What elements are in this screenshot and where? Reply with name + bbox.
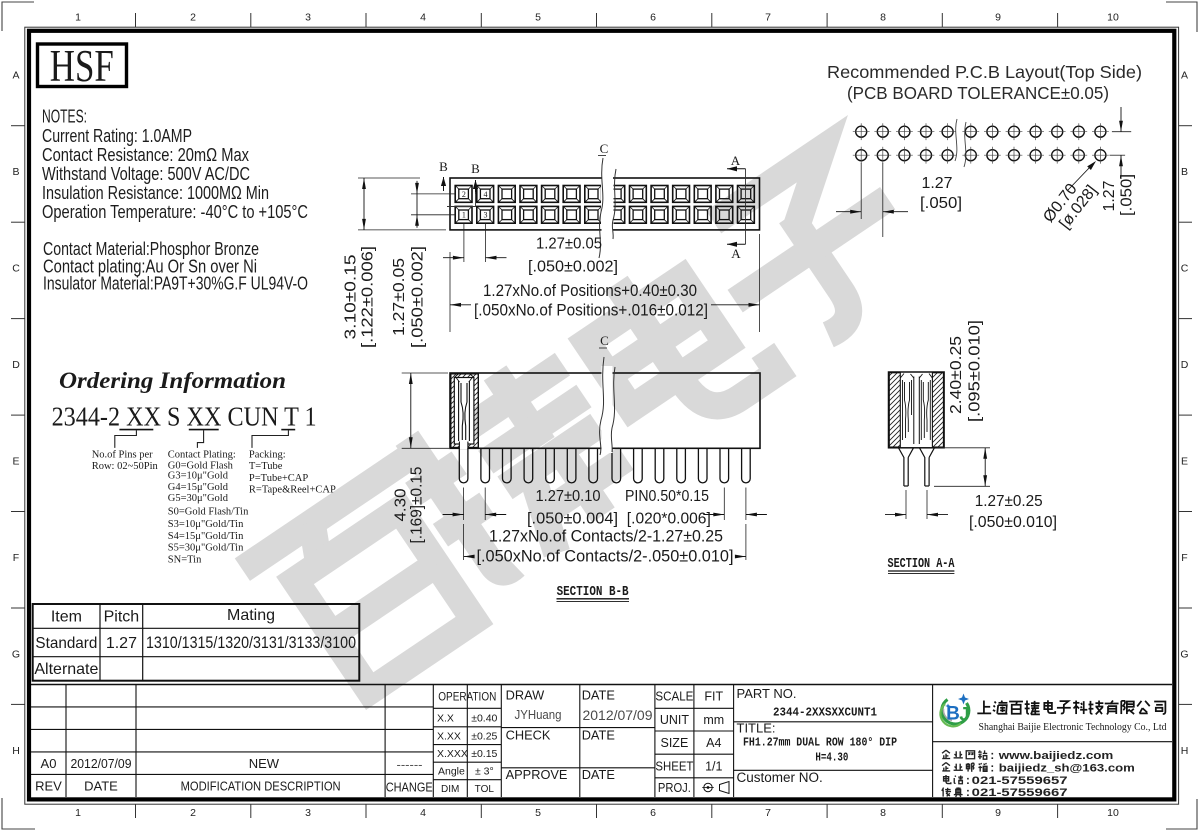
svg-text:2.40±0.25: 2.40±0.25 (948, 336, 965, 414)
svg-text:Item: Item (51, 609, 82, 626)
svg-text:E: E (12, 456, 19, 468)
svg-text:SN=Tin: SN=Tin (168, 554, 202, 565)
svg-text:C: C (600, 333, 609, 348)
svg-text:2344-2XXSXXCUNT1: 2344-2XXSXXCUNT1 (773, 706, 877, 720)
svg-text:4: 4 (420, 807, 426, 819)
svg-text:Recommended P.C.B Layout(Top S: Recommended P.C.B Layout(Top Side) (827, 62, 1142, 82)
svg-text:X.XX: X.XX (437, 731, 461, 743)
svg-text:Contact Resistance: 20mΩ Max: Contact Resistance: 20mΩ Max (42, 145, 249, 165)
svg-text:7: 7 (765, 12, 771, 24)
svg-text:Alternate: Alternate (34, 661, 98, 678)
svg-text:D: D (1181, 359, 1189, 371)
svg-text:SECTION B-B: SECTION B-B (557, 585, 629, 600)
svg-text:Angle: Angle (438, 766, 465, 778)
svg-text:±0.40: ±0.40 (471, 713, 497, 725)
svg-text:Operation Temperature: -40°C t: Operation Temperature: -40°C to +105°C (42, 202, 308, 222)
svg-text:[.050]: [.050] (920, 195, 962, 212)
svg-text:DIM: DIM (441, 784, 459, 795)
svg-text::: : (990, 750, 994, 762)
svg-text:NOTES:: NOTES: (42, 107, 87, 127)
svg-text:APPROVE: APPROVE (506, 767, 568, 782)
svg-text:B: B (12, 166, 19, 178)
svg-text:3.10±0.15: 3.10±0.15 (343, 255, 360, 340)
svg-text:C: C (1181, 263, 1189, 275)
svg-text:Contact Plating:: Contact Plating: (168, 450, 236, 461)
svg-text:2012/07/09: 2012/07/09 (71, 756, 132, 771)
svg-text:1.27±0.25: 1.27±0.25 (975, 493, 1043, 510)
svg-text:F: F (1181, 552, 1187, 564)
svg-text:DATE: DATE (582, 728, 615, 743)
svg-text:9: 9 (995, 12, 1001, 24)
svg-text:2: 2 (462, 190, 466, 199)
svg-text:10: 10 (1107, 807, 1119, 819)
svg-text:1.27: 1.27 (106, 635, 137, 652)
svg-text:2344-2 XX S XX CUN T 1: 2344-2 XX S XX CUN T 1 (52, 402, 317, 432)
svg-text:H: H (1181, 745, 1189, 757)
svg-text:A: A (1181, 70, 1188, 82)
svg-text:S0=Gold Flash/Tin: S0=Gold Flash/Tin (168, 507, 249, 518)
svg-text:A0: A0 (41, 756, 57, 771)
svg-text:[.122±0.006]: [.122±0.006] (360, 246, 377, 348)
svg-text:SIZE: SIZE (661, 736, 689, 750)
svg-text:Current Rating: 1.0AMP: Current Rating: 1.0AMP (42, 126, 192, 146)
svg-text:OPERATION: OPERATION (438, 690, 496, 704)
svg-text::: : (966, 787, 970, 799)
svg-text:[.050±0.002]: [.050±0.002] (410, 246, 427, 348)
svg-text:Customer NO.: Customer NO. (737, 770, 823, 785)
svg-text:G3=10μ"Gold: G3=10μ"Gold (168, 470, 229, 481)
svg-text:DATE: DATE (84, 779, 118, 794)
svg-text:[.050±0.002]: [.050±0.002] (528, 259, 618, 276)
svg-text:1: 1 (75, 807, 81, 819)
svg-text:X.XXX: X.XXX (437, 748, 468, 760)
svg-text:FH1.27mm DUAL ROW 180° DIP: FH1.27mm DUAL ROW 180° DIP (743, 736, 897, 750)
svg-text:2: 2 (190, 807, 196, 819)
svg-text:SECTION A-A: SECTION A-A (888, 557, 956, 572)
svg-text:B: B (1181, 166, 1188, 178)
svg-text:4.30: 4.30 (392, 488, 409, 521)
svg-text:[.050xNo.of Positions+.016±0.0: [.050xNo.of Positions+.016±0.012] (474, 302, 708, 320)
svg-text:4: 4 (420, 12, 426, 24)
svg-text:Insulator Material:PA9T+30%G.F: Insulator Material:PA9T+30%G.F UL94V-O (43, 274, 308, 294)
svg-text:Shanghai Baijie Electronic Tec: Shanghai Baijie Electronic Technology Co… (979, 721, 1168, 733)
svg-text:F: F (13, 552, 19, 564)
svg-text:JYHuang: JYHuang (515, 707, 562, 722)
svg-text:Packing:: Packing: (249, 450, 286, 461)
svg-text:P=Tube+CAP: P=Tube+CAP (249, 473, 308, 484)
svg-text:PART NO.: PART NO. (737, 686, 797, 701)
svg-text:mm: mm (703, 713, 724, 727)
svg-text:±0.25: ±0.25 (471, 731, 497, 743)
svg-text:1.27: 1.27 (922, 175, 953, 192)
svg-text:A4: A4 (706, 736, 721, 750)
svg-text:baijiedz_sh@163.com: baijiedz_sh@163.com (999, 762, 1135, 774)
svg-text:UNIT: UNIT (660, 713, 690, 727)
svg-text:J: J (959, 705, 970, 726)
svg-text:Standard: Standard (35, 635, 97, 652)
svg-text:±0.15: ±0.15 (471, 748, 497, 760)
svg-text:3: 3 (484, 211, 488, 220)
svg-text::: : (966, 775, 970, 787)
svg-text:1.27xNo.of Positions+0.40±0.30: 1.27xNo.of Positions+0.40±0.30 (483, 282, 697, 300)
svg-text:NEW: NEW (249, 756, 280, 771)
svg-text:TOL: TOL (475, 784, 495, 795)
svg-text:5: 5 (535, 807, 541, 819)
svg-text:DATE: DATE (582, 688, 615, 703)
svg-text:2012/07/09: 2012/07/09 (583, 708, 653, 723)
svg-text:1.27: 1.27 (1101, 180, 1118, 211)
svg-text:8: 8 (880, 12, 886, 24)
svg-text:2: 2 (190, 12, 196, 24)
svg-text:PIN0.50*0.15: PIN0.50*0.15 (625, 488, 709, 505)
svg-text:C: C (600, 141, 609, 156)
svg-text:H=4.30: H=4.30 (815, 751, 848, 765)
svg-text:A: A (731, 246, 741, 261)
svg-text:H: H (12, 745, 20, 757)
svg-text:No.of Pins per: No.of Pins per (92, 450, 153, 461)
svg-text:S5=30μ"Gold/Tin: S5=30μ"Gold/Tin (168, 543, 244, 554)
svg-text:021-57559657: 021-57559657 (972, 775, 1068, 787)
svg-text:PROJ.: PROJ. (658, 781, 691, 795)
svg-text:C: C (12, 263, 20, 275)
svg-text:6: 6 (650, 807, 656, 819)
svg-text:1.27xNo.of Contacts/2-1.27±0.2: 1.27xNo.of Contacts/2-1.27±0.25 (489, 528, 723, 546)
svg-text:SHEET: SHEET (655, 760, 693, 774)
svg-text:B: B (471, 161, 480, 176)
svg-text:G: G (12, 648, 20, 660)
svg-text:1.27±0.10: 1.27±0.10 (536, 488, 601, 505)
svg-text:DRAW: DRAW (506, 688, 546, 703)
svg-text:1310/1315/1320/3131/3133/3100: 1310/1315/1320/3131/3133/3100 (146, 634, 356, 652)
svg-text:G: G (1180, 648, 1188, 660)
svg-text:[.050]: [.050] (1119, 174, 1136, 216)
svg-text:[.095±0.010]: [.095±0.010] (967, 320, 984, 422)
svg-text:Pitch: Pitch (104, 609, 140, 626)
svg-text:------: ------ (397, 757, 423, 772)
svg-text:9: 9 (995, 807, 1001, 819)
svg-text:Mating: Mating (227, 607, 275, 624)
svg-text:021-57559667: 021-57559667 (972, 787, 1068, 799)
svg-text:T=Tube: T=Tube (249, 461, 283, 472)
svg-text:HSF: HSF (50, 41, 114, 91)
svg-text:A: A (731, 153, 741, 168)
svg-text:[.020*0.006]: [.020*0.006] (627, 511, 711, 528)
svg-text:(PCB BOARD TOLERANCE±0.05): (PCB BOARD TOLERANCE±0.05) (847, 83, 1109, 103)
svg-text:[.050xNo.of Contacts/2-.050±0.: [.050xNo.of Contacts/2-.050±0.010] (477, 548, 734, 566)
svg-text:± 3°: ± 3° (475, 766, 494, 778)
svg-text:G5=30μ"Gold: G5=30μ"Gold (168, 493, 229, 504)
svg-text:1/1: 1/1 (705, 760, 722, 774)
svg-text:1.27±0.05: 1.27±0.05 (391, 258, 408, 336)
svg-text:S4=15μ"Gold/Tin: S4=15μ"Gold/Tin (168, 531, 244, 542)
svg-text::: : (990, 762, 994, 774)
svg-text:CHECK: CHECK (506, 728, 551, 743)
svg-text:TITLE:: TITLE: (737, 721, 776, 736)
svg-text:1.27±0.05: 1.27±0.05 (536, 236, 602, 253)
svg-text:REV: REV (35, 779, 62, 794)
svg-text:CHANGE: CHANGE (386, 780, 433, 795)
svg-text:1: 1 (75, 12, 81, 24)
svg-text:Insulation Resistance: 1000MΩ: Insulation Resistance: 1000MΩ Min (42, 183, 269, 203)
svg-text:Row: 02~50Pin: Row: 02~50Pin (92, 461, 159, 472)
svg-text:MODIFICATION DESCRIPTION: MODIFICATION DESCRIPTION (181, 779, 341, 794)
svg-text:[.169]±0.15: [.169]±0.15 (409, 467, 426, 544)
svg-text:DATE: DATE (582, 767, 615, 782)
svg-text:5: 5 (535, 12, 541, 24)
svg-text:www.baijiedz.com: www.baijiedz.com (998, 750, 1114, 762)
svg-text:8: 8 (880, 807, 886, 819)
svg-text:3: 3 (305, 807, 311, 819)
svg-text:E: E (1181, 456, 1188, 468)
svg-text:G4=15μ"Gold: G4=15μ"Gold (168, 482, 229, 493)
svg-text:6: 6 (650, 12, 656, 24)
svg-text:SCALE: SCALE (655, 690, 693, 704)
svg-text:[.050±0.004]: [.050±0.004] (527, 511, 618, 528)
svg-text:FIT: FIT (704, 690, 723, 704)
svg-text:3: 3 (305, 12, 311, 24)
svg-text:R=Tape&Reel+CAP: R=Tape&Reel+CAP (249, 485, 336, 496)
svg-text:B: B (439, 159, 448, 174)
svg-text:A: A (12, 70, 19, 82)
svg-text:10: 10 (1107, 12, 1119, 24)
svg-text:Withstand Voltage: 500V AC/DC: Withstand Voltage: 500V AC/DC (42, 164, 250, 184)
svg-text:7: 7 (765, 807, 771, 819)
svg-text:Ordering Information: Ordering Information (59, 368, 286, 393)
svg-text:4: 4 (484, 190, 488, 199)
svg-text:D: D (12, 359, 20, 371)
svg-text:1: 1 (462, 211, 466, 220)
svg-text:[.050±0.010]: [.050±0.010] (969, 514, 1057, 531)
svg-text:S3=10μ"Gold/Tin: S3=10μ"Gold/Tin (168, 519, 244, 530)
svg-text:X.X: X.X (437, 713, 454, 725)
